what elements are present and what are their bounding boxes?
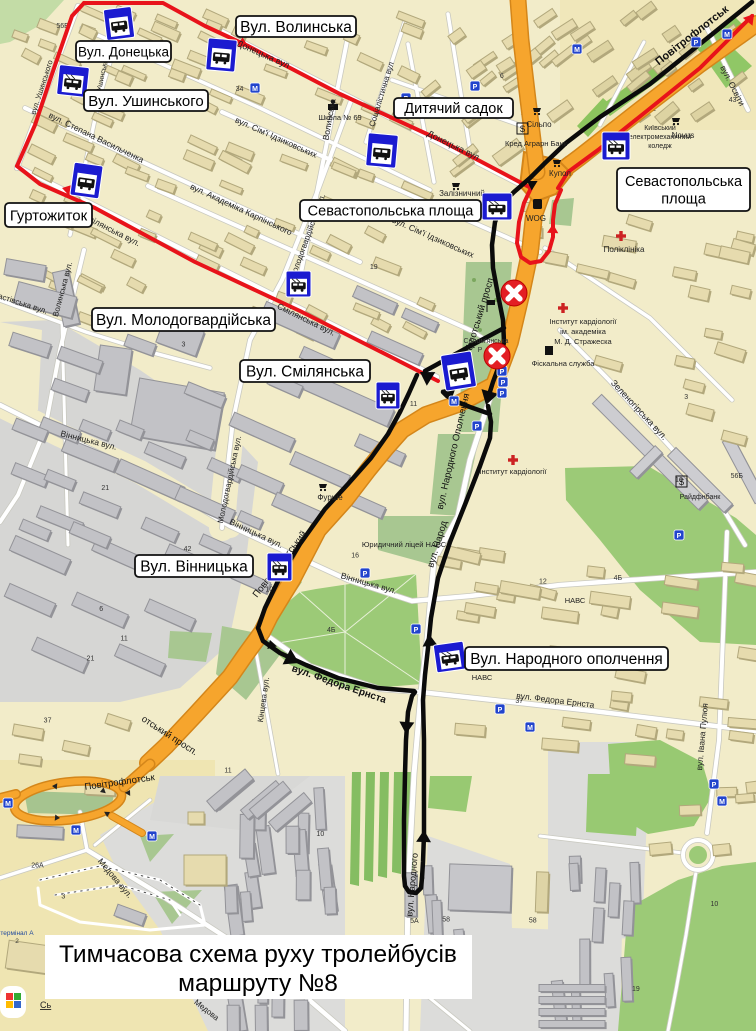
svg-text:Р: Р (363, 571, 368, 578)
svg-text:електромеханічний: електромеханічний (629, 133, 691, 141)
svg-text:Сь: Сь (40, 1000, 51, 1010)
svg-text:Фурше: Фурше (317, 493, 343, 502)
svg-text:М: М (252, 86, 258, 93)
svg-text:Р: Р (712, 782, 717, 789)
svg-text:НАВС: НАВС (565, 596, 586, 605)
svg-text:26А: 26А (31, 863, 44, 870)
svg-text:Р: Р (498, 707, 503, 714)
svg-text:М: М (719, 799, 725, 806)
svg-text:Р: Р (473, 84, 478, 91)
svg-text:3: 3 (182, 342, 186, 349)
svg-text:Залізничний: Залізничний (439, 189, 485, 198)
svg-text:Поліклініка: Поліклініка (604, 245, 645, 254)
svg-text:19: 19 (632, 986, 640, 993)
svg-text:М: М (73, 828, 79, 835)
svg-text:Київський: Київський (644, 124, 676, 132)
svg-text:Райдфнбанк: Райдфнбанк (680, 493, 722, 501)
svg-text:Севастопольська: Севастопольська (625, 174, 743, 190)
svg-text:5А: 5А (410, 918, 419, 925)
svg-text:42: 42 (184, 546, 192, 553)
svg-text:Р: Р (500, 391, 505, 398)
svg-text:4Б: 4Б (327, 627, 336, 634)
svg-text:11: 11 (224, 767, 231, 774)
svg-text:$: $ (520, 124, 525, 134)
svg-text:58: 58 (442, 916, 450, 923)
svg-text:Р: Р (501, 380, 506, 387)
svg-text:3: 3 (61, 894, 65, 901)
svg-text:М: М (527, 725, 533, 732)
svg-text:19: 19 (370, 264, 378, 271)
svg-text:Р: Р (475, 424, 480, 431)
svg-text:ім. академіка: ім. академіка (560, 327, 607, 336)
svg-text:12: 12 (539, 578, 547, 585)
svg-text:Вул. Донецька: Вул. Донецька (78, 44, 169, 59)
svg-text:11: 11 (121, 635, 128, 642)
svg-text:М: М (5, 801, 11, 808)
svg-text:М. Д. Стражеска: М. Д. Стражеска (554, 337, 612, 346)
svg-text:16: 16 (351, 553, 359, 560)
svg-text:НАВС: НАВС (472, 673, 493, 682)
svg-text:34: 34 (236, 86, 244, 93)
svg-text:Купол: Купол (549, 169, 571, 178)
svg-text:коледж: коледж (648, 143, 672, 150)
svg-text:10: 10 (316, 831, 324, 838)
svg-text:6: 6 (99, 606, 103, 613)
svg-text:Фіскальна служба: Фіскальна служба (532, 359, 596, 368)
svg-text:М: М (451, 399, 457, 406)
svg-text:Сільпо: Сільпо (526, 120, 552, 129)
svg-text:маршруту №8: маршруту №8 (178, 970, 338, 997)
svg-text:21: 21 (87, 656, 95, 663)
svg-text:М: М (149, 834, 155, 841)
svg-text:$: $ (679, 477, 684, 487)
svg-text:37: 37 (44, 718, 52, 725)
svg-text:Вул. Народного ополчення: Вул. Народного ополчення (470, 651, 663, 668)
svg-text:Вул. Вінницька: Вул. Вінницька (140, 559, 248, 576)
svg-text:2: 2 (15, 938, 19, 945)
svg-text:11: 11 (410, 401, 417, 408)
svg-text:Р: Р (694, 40, 699, 47)
svg-text:Вул. Смілянська: Вул. Смілянська (246, 364, 364, 381)
svg-text:М: М (574, 47, 580, 54)
svg-text:Інститут кардіології: Інститут кардіології (549, 317, 617, 326)
svg-text:Р: Р (677, 533, 682, 540)
svg-text:Р: Р (478, 347, 483, 354)
svg-text:3: 3 (684, 394, 688, 401)
svg-text:Тимчасова схема руху тролейбус: Тимчасова схема руху тролейбусів (59, 941, 457, 968)
svg-text:М: М (724, 32, 730, 39)
svg-text:Вул. Волинська: Вул. Волинська (240, 19, 352, 36)
svg-text:WOG: WOG (526, 214, 546, 223)
svg-text:4Б: 4Б (614, 575, 623, 582)
svg-text:10: 10 (710, 901, 718, 908)
svg-text:Вул. Молодогвардійська: Вул. Молодогвардійська (96, 312, 271, 329)
svg-text:Гуртожиток: Гуртожиток (10, 207, 88, 224)
svg-text:Р: Р (500, 369, 505, 376)
svg-text:Інститут кардіології: Інститут кардіології (479, 467, 547, 476)
svg-text:Дитячий садок: Дитячий садок (404, 101, 503, 117)
svg-text:Вул. Ушинського: Вул. Ушинського (88, 93, 204, 110)
svg-text:56Б: 56Б (731, 473, 744, 480)
svg-text:58: 58 (529, 917, 537, 924)
svg-text:21: 21 (101, 485, 109, 492)
svg-text:Р: Р (414, 627, 419, 634)
svg-text:Кред Аграрн Банк: Кред Аграрн Банк (505, 139, 568, 148)
svg-text:термінал А: термінал А (0, 929, 34, 937)
svg-text:6: 6 (500, 73, 504, 80)
svg-text:площа: площа (661, 192, 706, 208)
svg-text:Севастопольська площа: Севастопольська площа (308, 204, 475, 220)
